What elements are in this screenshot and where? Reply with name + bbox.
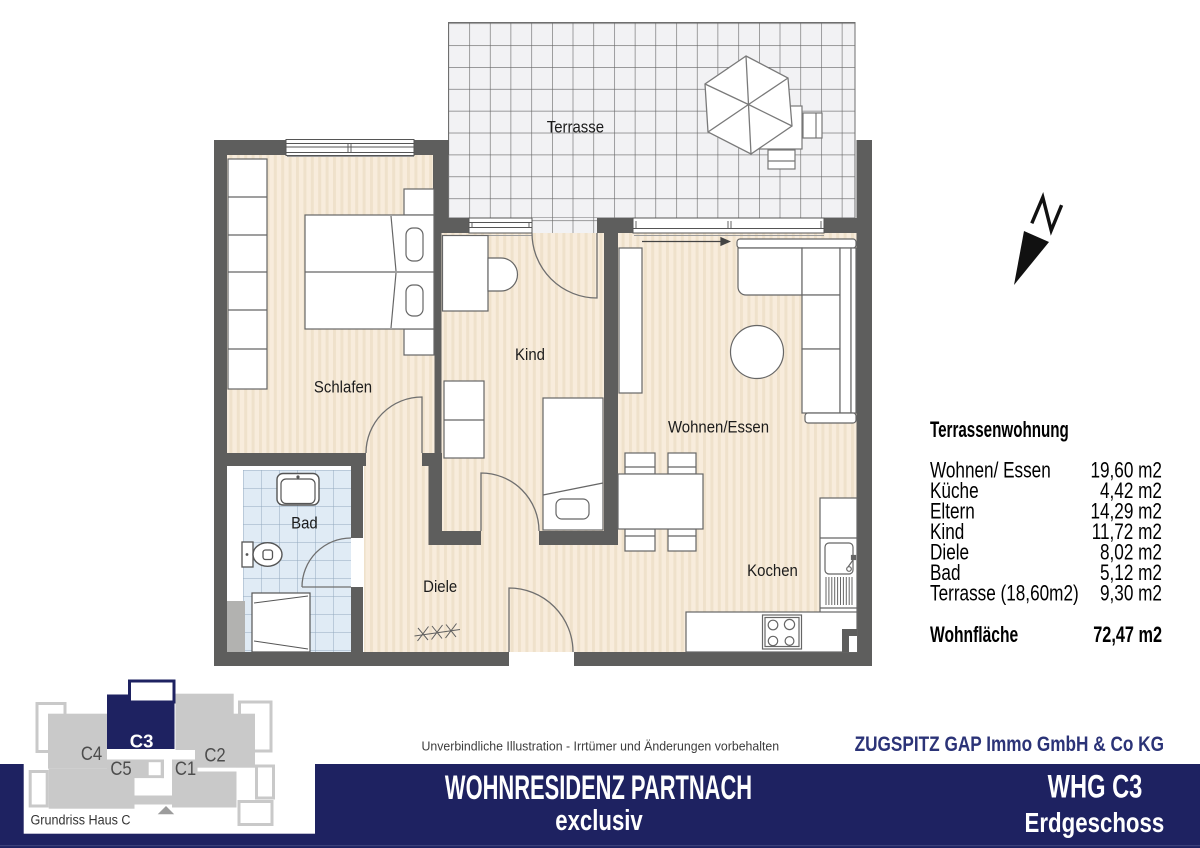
svg-text:Bad: Bad [291, 515, 318, 533]
svg-text:C2: C2 [204, 745, 225, 766]
svg-text:9,30 m2: 9,30 m2 [1100, 581, 1162, 606]
svg-text:C4: C4 [81, 743, 102, 764]
svg-text:Diele: Diele [423, 578, 457, 596]
svg-text:WHG C3: WHG C3 [1048, 769, 1143, 804]
svg-text:exclusiv: exclusiv [555, 805, 643, 836]
svg-text:ZUGSPITZ GAP Immo GmbH & Co KG: ZUGSPITZ GAP Immo GmbH & Co KG [855, 734, 1164, 757]
svg-text:Erdgeschoss: Erdgeschoss [1025, 808, 1165, 839]
svg-text:Kind: Kind [515, 346, 545, 364]
svg-text:C1: C1 [175, 758, 196, 779]
svg-text:Terrasse (18,60m2): Terrasse (18,60m2) [930, 581, 1079, 606]
svg-text:Terrasse: Terrasse [547, 118, 604, 136]
svg-text:C5: C5 [110, 758, 131, 779]
svg-text:72,47 m2: 72,47 m2 [1093, 623, 1162, 648]
svg-text:Schlafen: Schlafen [314, 378, 372, 396]
svg-text:Kochen: Kochen [747, 562, 798, 580]
svg-text:Wohnfläche: Wohnfläche [930, 624, 1018, 648]
svg-text:Wohnen/Essen: Wohnen/Essen [668, 419, 769, 437]
svg-text:Unverbindliche Illustration -: Unverbindliche Illustration - Irrtümer u… [421, 739, 779, 753]
svg-text:WOHNRESIDENZ PARTNACH: WOHNRESIDENZ PARTNACH [445, 769, 752, 807]
svg-text:Grundriss Haus C: Grundriss Haus C [31, 812, 131, 828]
svg-text:C3: C3 [130, 731, 154, 752]
svg-text:Terrassenwohnung: Terrassenwohnung [930, 418, 1069, 442]
